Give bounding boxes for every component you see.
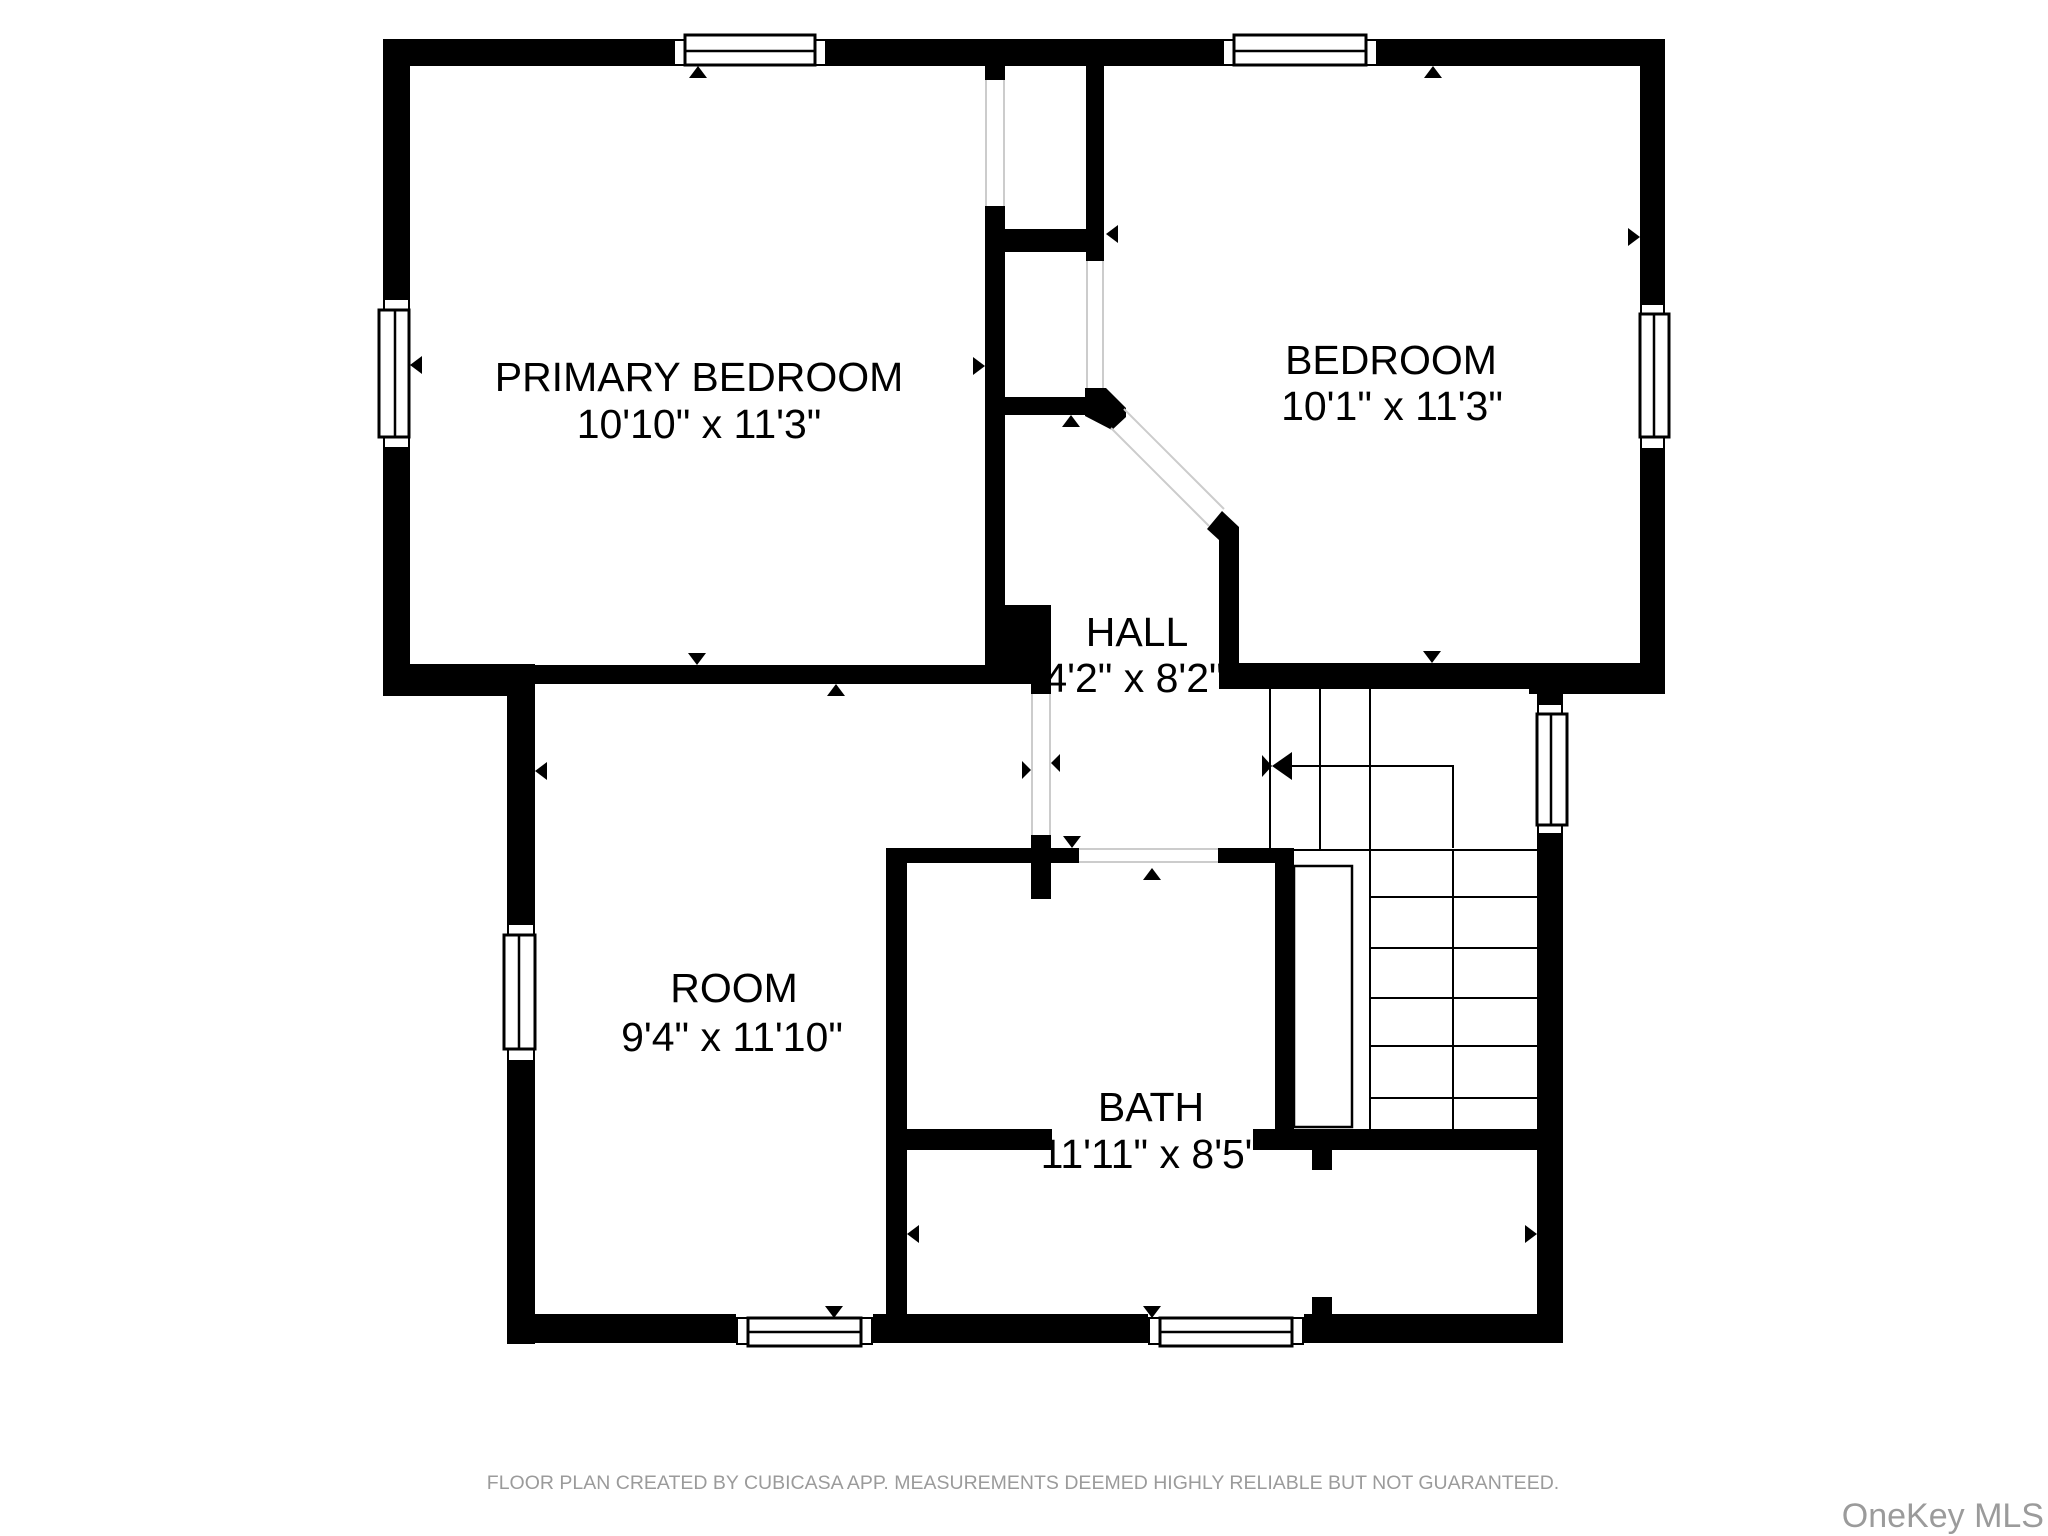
svg-text:PRIMARY BEDROOM: PRIMARY BEDROOM bbox=[495, 354, 904, 400]
svg-text:FLOOR PLAN CREATED BY CUBICASA: FLOOR PLAN CREATED BY CUBICASA APP. MEAS… bbox=[487, 1472, 1559, 1494]
svg-text:ROOM: ROOM bbox=[670, 965, 798, 1011]
svg-text:4'2" x 8'2": 4'2" x 8'2" bbox=[1044, 655, 1223, 701]
svg-text:BEDROOM: BEDROOM bbox=[1285, 337, 1497, 383]
svg-text:9'4" x 11'10": 9'4" x 11'10" bbox=[621, 1014, 843, 1060]
svg-text:HALL: HALL bbox=[1086, 609, 1189, 655]
svg-text:OneKey MLS: OneKey MLS bbox=[1842, 1497, 2044, 1535]
svg-text:11'11" x 8'5": 11'11" x 8'5" bbox=[1041, 1131, 1260, 1177]
svg-text:BATH: BATH bbox=[1098, 1084, 1204, 1130]
svg-text:10'10" x 11'3": 10'10" x 11'3" bbox=[577, 401, 822, 447]
svg-text:10'1" x 11'3": 10'1" x 11'3" bbox=[1281, 383, 1503, 429]
